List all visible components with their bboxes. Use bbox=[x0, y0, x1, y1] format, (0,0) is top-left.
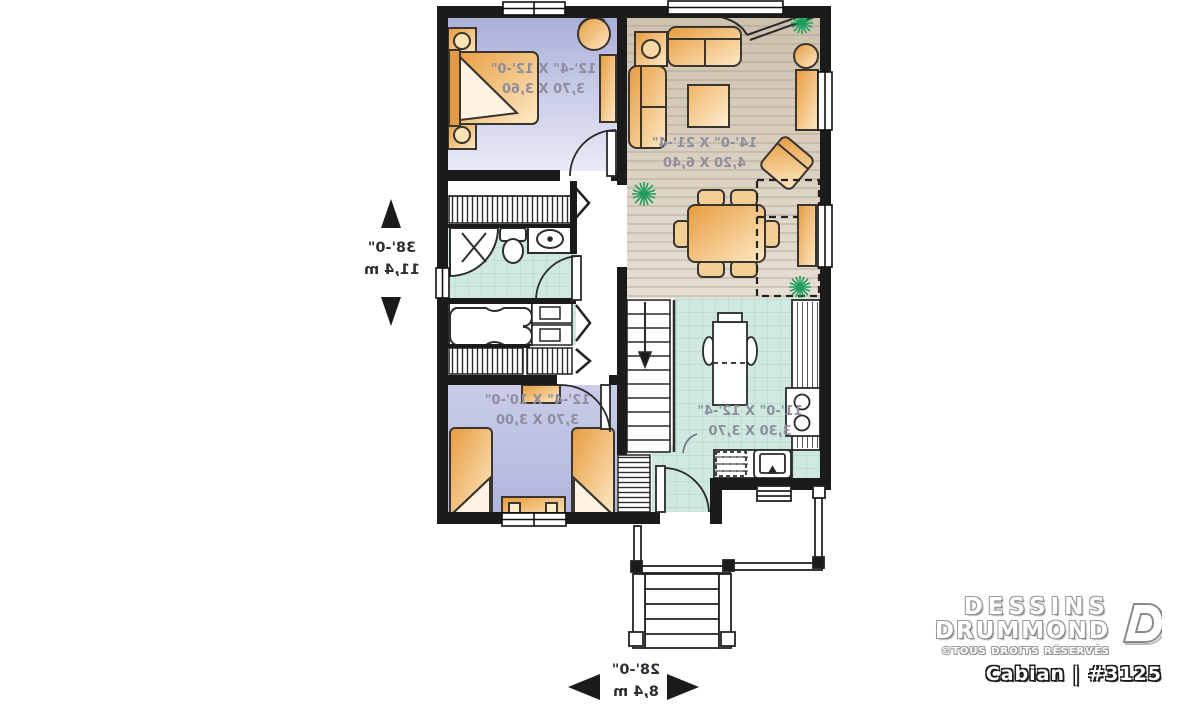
kitchen-metric: 3,30 X 3,70 bbox=[686, 422, 814, 442]
porch-post bbox=[631, 561, 642, 572]
closet-hangers bbox=[449, 196, 573, 223]
staircase bbox=[627, 300, 674, 452]
dining-chair bbox=[731, 190, 757, 206]
brand-copyright: ©TOUS DROITS RÉSERVÉS bbox=[935, 646, 1110, 657]
entry-closet bbox=[618, 455, 650, 512]
porch-post bbox=[813, 557, 824, 568]
plant-icon bbox=[632, 182, 656, 206]
lamp-icon bbox=[642, 40, 660, 58]
bedroom1-window bbox=[503, 2, 565, 15]
buffet bbox=[798, 205, 816, 266]
kitchen-label: 11'-0" X 12'-4" 3,30 X 3,70 bbox=[686, 402, 814, 442]
bedroom1-metric: 3,70 X 3,60 bbox=[476, 80, 611, 100]
arrow-left-icon bbox=[568, 674, 600, 700]
wall-bedroom2 bbox=[447, 375, 557, 385]
drummond-d-logo-icon bbox=[1116, 594, 1162, 654]
right-window-1 bbox=[818, 72, 832, 130]
bedroom2-imperial: 12'-4" X 10'-0" bbox=[470, 391, 605, 411]
bedroom2-window bbox=[502, 513, 566, 526]
tv-unit bbox=[796, 70, 818, 130]
brand-line2: DRUMMOND bbox=[935, 618, 1110, 644]
dishwasher bbox=[716, 452, 746, 476]
wall-bedroom1 bbox=[447, 170, 560, 181]
horizontal-dimension-imperial: 28'-0" bbox=[598, 660, 674, 682]
wall-tub bbox=[447, 344, 530, 348]
model-name: Cabian | #3125 bbox=[932, 663, 1162, 685]
railing bbox=[634, 566, 730, 573]
bedroom2-label: 12'-4" X 10'-0" 3,70 X 3,00 bbox=[470, 391, 605, 431]
porch-post bbox=[813, 486, 825, 498]
arrow-up-icon bbox=[381, 199, 401, 228]
round-table bbox=[794, 44, 818, 68]
dining-chair bbox=[698, 261, 724, 277]
porch-post bbox=[721, 632, 735, 646]
plant-icon bbox=[789, 276, 811, 298]
vertical-dimension: 38'-0" 11,4 m bbox=[352, 238, 432, 282]
kitchen-imperial: 11'-0" X 12'-4" bbox=[686, 402, 814, 422]
floor-plan-page: 12'-4" X 12'-0" 3,70 X 3,60 14'-0" X 21'… bbox=[0, 0, 1200, 711]
railing bbox=[815, 494, 822, 566]
horizontal-dimension: 28'-0" 8,4 m bbox=[598, 660, 674, 704]
closet-hangers bbox=[527, 348, 572, 374]
living-metric: 4,20 X 6,40 bbox=[637, 154, 772, 174]
wall-left bbox=[437, 6, 448, 524]
bifold-door bbox=[576, 349, 590, 373]
coffee-table bbox=[688, 85, 729, 127]
bifold-door bbox=[576, 305, 590, 341]
living-window bbox=[668, 1, 783, 14]
dining-chair bbox=[731, 261, 757, 277]
arrow-down-icon bbox=[381, 297, 401, 326]
railing bbox=[726, 563, 822, 570]
wall-closet bbox=[447, 224, 576, 228]
wall-center-upper bbox=[617, 6, 627, 185]
lamp-icon bbox=[454, 127, 470, 143]
brand-line1: DESSINS bbox=[935, 594, 1110, 620]
bedroom1-label: 12'-4" X 12'-0" 3,70 X 3,60 bbox=[476, 60, 611, 100]
lamp-icon bbox=[454, 33, 470, 49]
wall-bath bbox=[447, 298, 576, 304]
dining-table bbox=[688, 205, 765, 262]
porch-post bbox=[723, 560, 734, 571]
horizontal-dimension-metric: 8,4 m bbox=[598, 682, 674, 704]
back-stoop bbox=[757, 486, 791, 501]
living-label: 14'-0" X 21'-4" 4,20 X 6,40 bbox=[637, 134, 772, 174]
bedroom1-imperial: 12'-4" X 12'-0" bbox=[476, 60, 611, 80]
right-window-2 bbox=[818, 205, 832, 267]
title-block: DESSINS DRUMMOND ©TOUS DROITS RÉSERVÉS C… bbox=[932, 594, 1162, 685]
living-imperial: 14'-0" X 21'-4" bbox=[637, 134, 772, 154]
wall-center-lower bbox=[617, 267, 627, 455]
linen-closet bbox=[449, 348, 523, 374]
vertical-dimension-imperial: 38'-0" bbox=[352, 238, 432, 260]
brand-text: DESSINS DRUMMOND ©TOUS DROITS RÉSERVÉS bbox=[935, 594, 1110, 657]
bedroom2-metric: 3,70 X 3,00 bbox=[470, 411, 605, 431]
toilet-bowl bbox=[503, 239, 523, 263]
vertical-dimension-metric: 11,4 m bbox=[352, 260, 432, 282]
bathroom-window bbox=[436, 268, 449, 298]
headboard bbox=[449, 50, 460, 126]
dining-chair bbox=[698, 190, 724, 206]
porch-steps bbox=[645, 574, 719, 648]
porch-post bbox=[629, 632, 643, 646]
wall-bath-side bbox=[570, 181, 577, 254]
